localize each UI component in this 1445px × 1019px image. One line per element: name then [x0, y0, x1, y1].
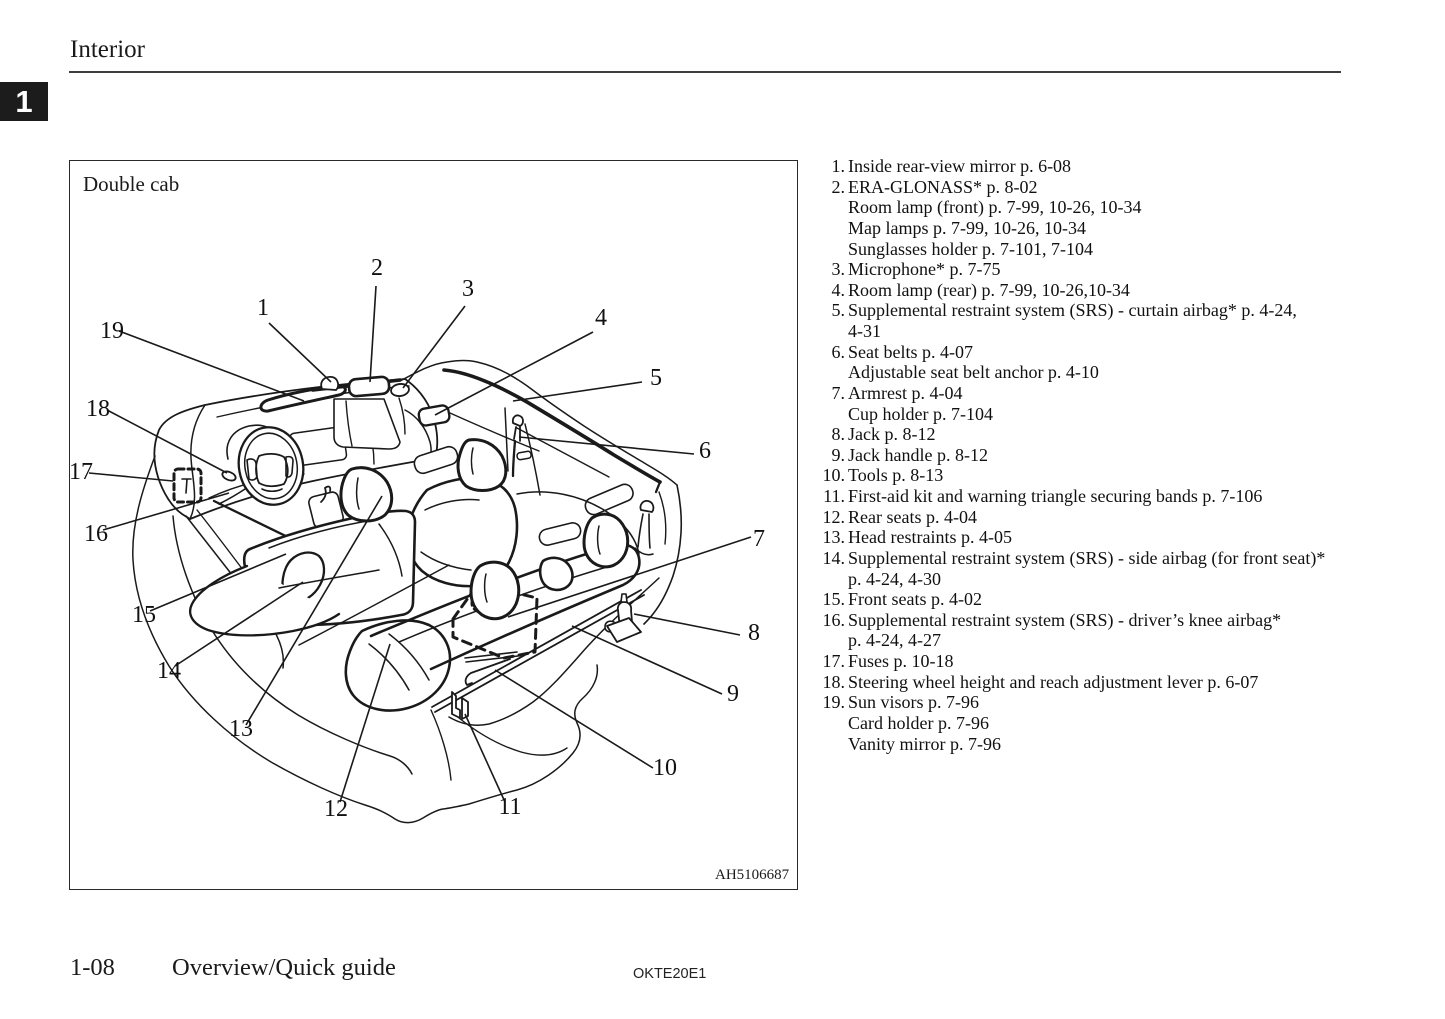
svg-text:18: 18	[86, 396, 110, 422]
svg-text:4: 4	[595, 305, 607, 331]
svg-text:11: 11	[498, 794, 521, 820]
svg-text:15: 15	[132, 602, 156, 628]
svg-text:19: 19	[100, 318, 124, 344]
svg-text:13: 13	[229, 716, 253, 742]
svg-text:5: 5	[650, 365, 662, 391]
svg-text:14: 14	[157, 658, 181, 684]
svg-text:8: 8	[748, 620, 760, 646]
svg-text:7: 7	[753, 526, 765, 552]
svg-text:12: 12	[324, 796, 348, 822]
svg-text:9: 9	[727, 681, 739, 707]
svg-text:1: 1	[257, 295, 269, 321]
svg-text:17: 17	[69, 459, 93, 485]
svg-text:10: 10	[653, 755, 677, 781]
svg-text:2: 2	[371, 255, 383, 281]
svg-text:6: 6	[699, 438, 711, 464]
svg-text:16: 16	[84, 521, 108, 547]
svg-text:3: 3	[462, 276, 474, 302]
